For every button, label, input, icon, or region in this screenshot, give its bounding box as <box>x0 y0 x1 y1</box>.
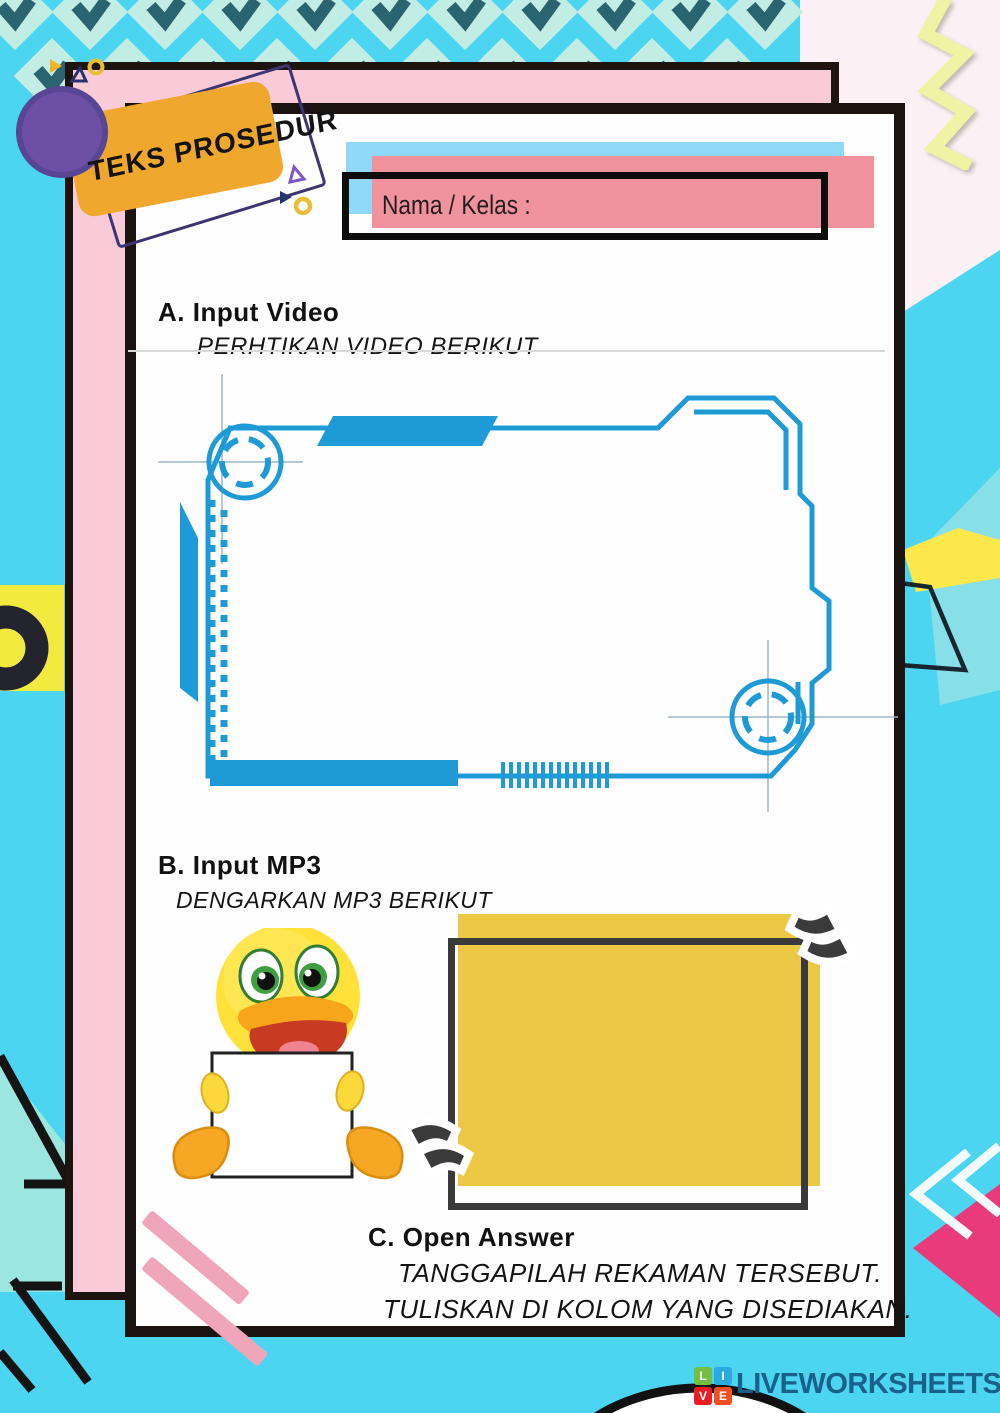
quote-close-icon: ” <box>770 895 900 1035</box>
logo-letter-l: L <box>694 1367 712 1385</box>
liveworksheets-wordmark: LIVEWORKSHEETS <box>736 1368 1000 1401</box>
separator-line <box>128 350 885 352</box>
duck-mascot <box>163 928 415 1212</box>
answer-board[interactable] <box>212 1053 352 1177</box>
confetti-decoration <box>40 55 325 225</box>
liveworksheets-logo-icon: L I V E <box>694 1367 732 1405</box>
section-b-instruction: DENGARKAN MP3 BERIKUT <box>176 887 492 914</box>
yellow-zigzag-decoration <box>900 0 1000 170</box>
svg-text:“: “ <box>405 1096 490 1220</box>
video-player-frame[interactable] <box>158 372 903 817</box>
section-c-instruction-1: TANGGAPILAH REKAMAN TERSEBUT. <box>398 1258 882 1289</box>
section-b-heading: B. Input MP3 <box>158 850 321 881</box>
logo-letter-v: V <box>694 1387 712 1405</box>
logo-letter-i: I <box>714 1367 732 1385</box>
section-a-heading: A. Input Video <box>158 297 339 328</box>
name-kelas-label: Nama / Kelas : <box>382 190 531 221</box>
dark-ring-decoration <box>0 598 70 708</box>
section-c-instruction-2: TULISKAN DI KOLOM YANG DISEDIAKAN. <box>383 1294 912 1325</box>
right-side-geometry <box>895 460 1000 720</box>
quote-open-icon: “ <box>405 1090 535 1220</box>
logo-letter-e: E <box>714 1387 732 1405</box>
section-c-heading: C. Open Answer <box>368 1222 575 1253</box>
section-a-instruction: PERHTIKAN VIDEO BERIKUT <box>197 333 538 361</box>
svg-text:”: ” <box>770 895 873 1016</box>
